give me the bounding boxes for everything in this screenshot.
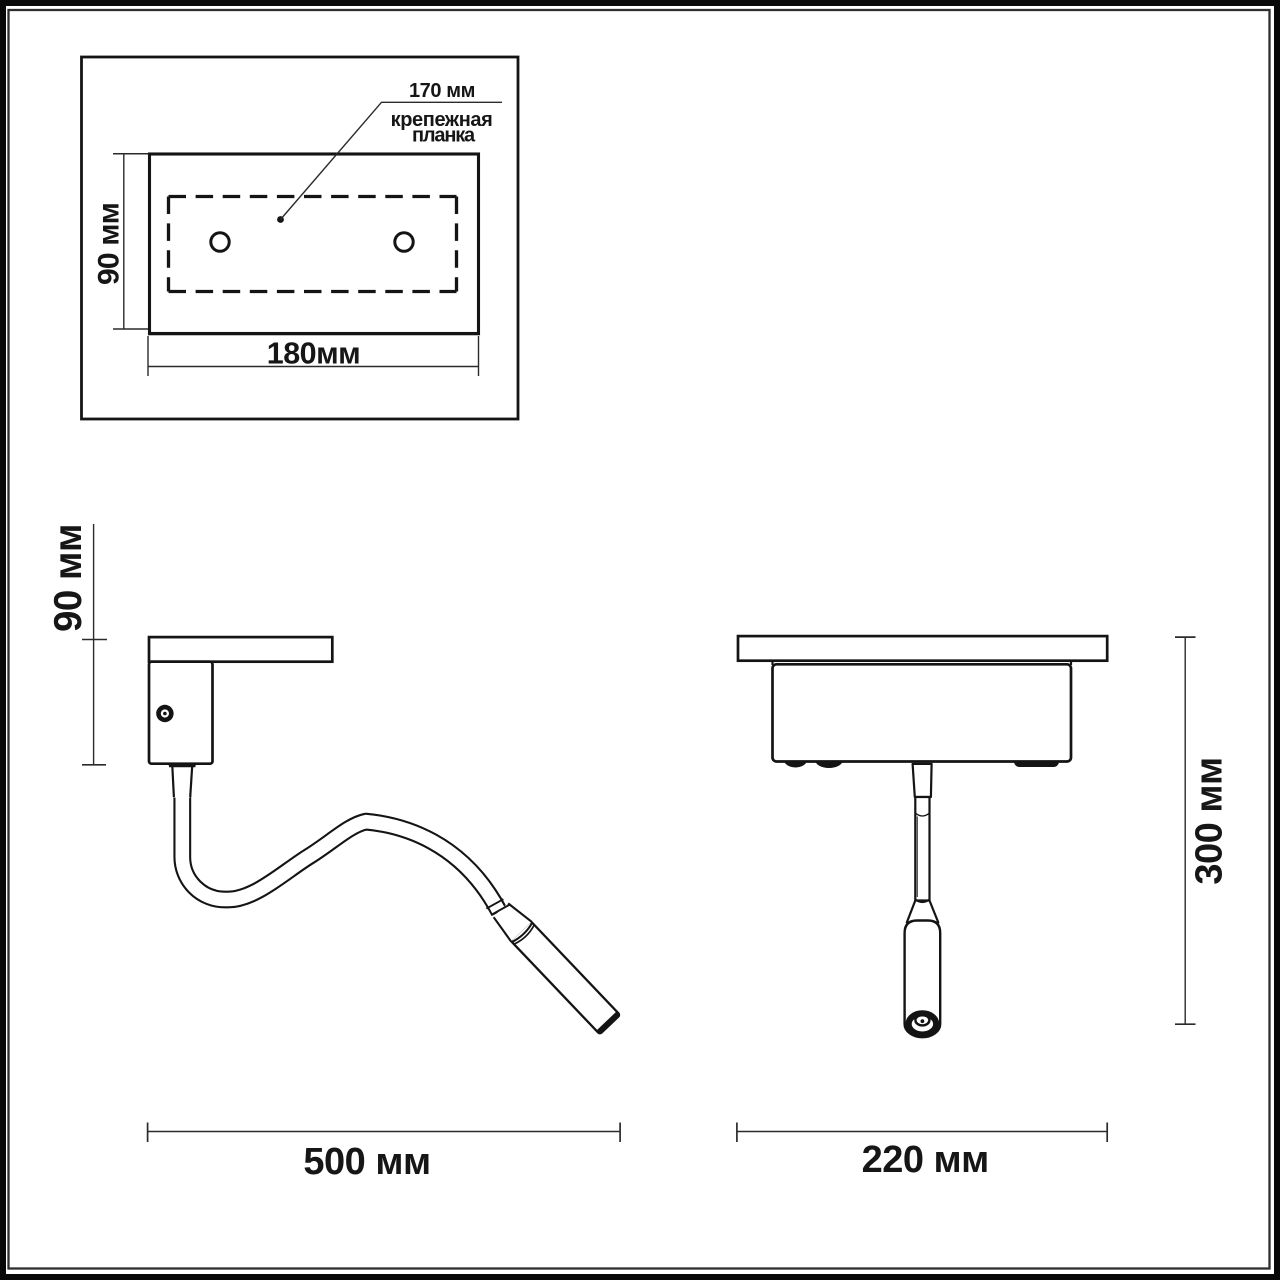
svg-text:180мм: 180мм: [267, 337, 361, 371]
svg-text:300 мм: 300 мм: [1189, 757, 1231, 884]
svg-text:планка: планка: [412, 125, 476, 147]
svg-text:90 мм: 90 мм: [47, 524, 90, 632]
svg-text:500 мм: 500 мм: [303, 1141, 430, 1183]
svg-text:170 мм: 170 мм: [409, 80, 475, 102]
svg-text:220 мм: 220 мм: [862, 1139, 989, 1181]
svg-text:90 мм: 90 мм: [92, 203, 125, 285]
